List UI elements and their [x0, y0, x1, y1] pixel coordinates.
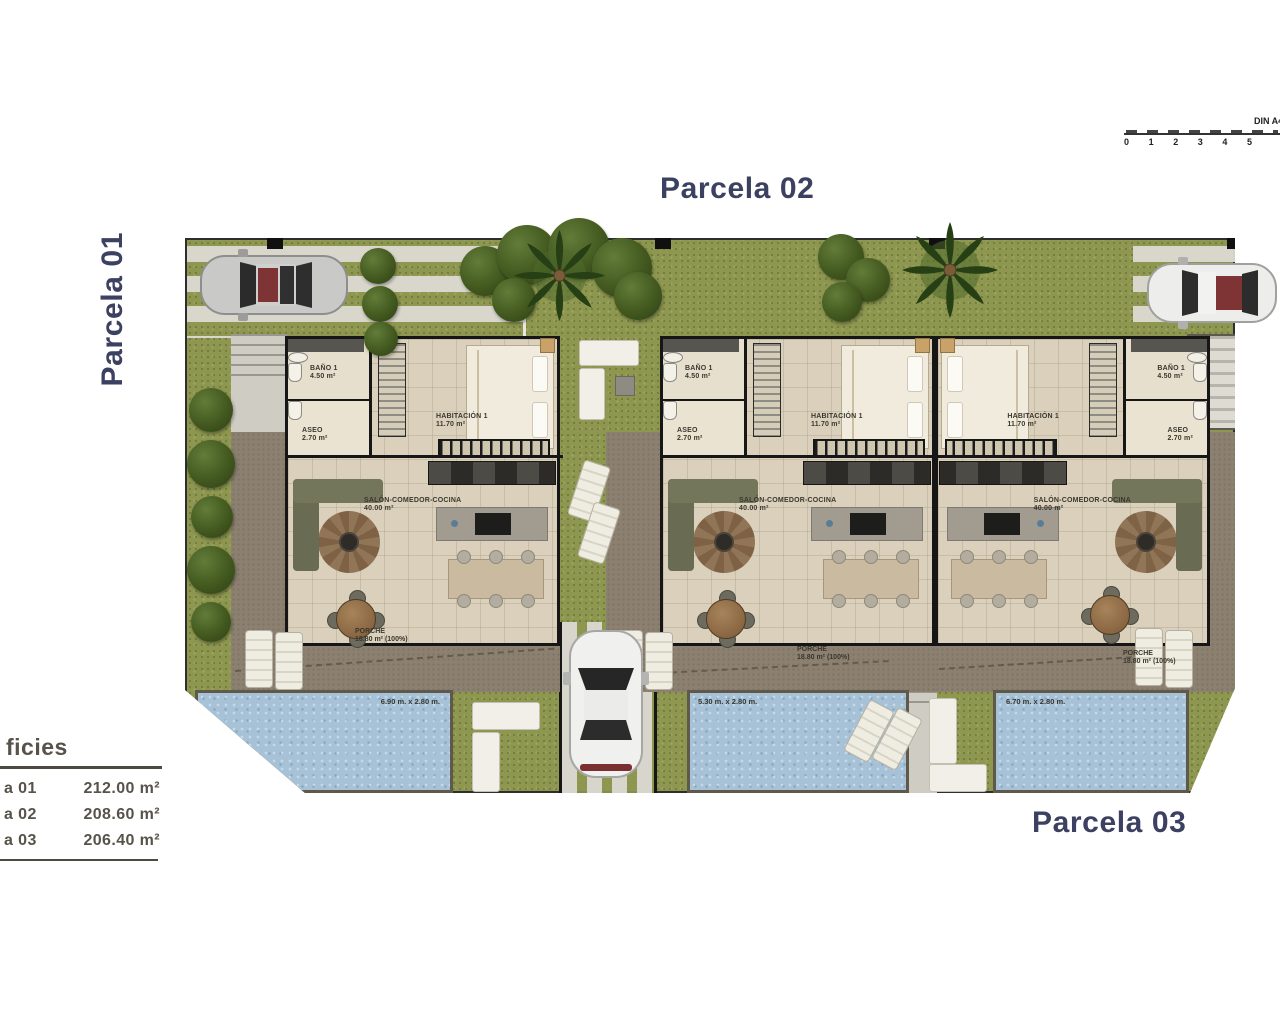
pool: 6.90 m. x 2.80 m. — [195, 690, 453, 793]
aseo-label: ASEO2.70 m² — [677, 427, 703, 444]
scale-bar-label: DIN A4 — [1254, 116, 1280, 126]
tree-icon — [191, 496, 233, 538]
nightstand-icon — [915, 338, 930, 353]
outdoor-sofa-icon — [472, 702, 540, 730]
toilet-icon — [288, 401, 302, 420]
bed-icon — [466, 345, 554, 449]
coffee-table-icon — [339, 532, 359, 552]
villa-floorplan-1: BAÑO 14.50 m² ASEO2.70 m² HABITACIÓN 111… — [285, 336, 560, 646]
salon-label: SALÓN-COMEDOR-COCINA40.00 m² — [1034, 497, 1131, 514]
dining-table-icon — [951, 559, 1047, 599]
parcela-01-title: Parcela 01 — [96, 232, 130, 386]
toilet-icon — [663, 401, 677, 420]
dining-table-icon — [823, 559, 919, 599]
outdoor-table-icon — [699, 592, 753, 646]
porche-label: PORCHE18.80 m² (100%) — [355, 628, 408, 645]
tree-icon — [362, 286, 398, 322]
scale-bar-line — [1124, 133, 1280, 135]
car-icon — [198, 248, 350, 327]
parcela-02-title: Parcela 02 — [660, 172, 814, 206]
toilet-icon — [288, 363, 302, 382]
pool: 6.70 m. x 2.80 m. — [993, 690, 1189, 793]
wardrobe-icon — [1089, 343, 1117, 437]
coffee-table-icon — [714, 532, 734, 552]
parcela-03-title: Parcela 03 — [1032, 806, 1186, 840]
stairs-icon — [813, 439, 925, 457]
boundary-diagonal — [1192, 689, 1240, 796]
car-icon — [562, 628, 650, 785]
outdoor-sofa-icon — [579, 368, 605, 420]
sink-icon — [663, 352, 683, 363]
room-aseo — [288, 401, 369, 455]
kitchen-counter — [803, 461, 931, 485]
pool-dimensions-label: 6.70 m. x 2.80 m. — [1006, 697, 1065, 706]
scale-bar: DIN A4 012345 — [1124, 116, 1280, 156]
villa-floorplan-3: BAÑO 14.50 m² ASEO2.70 m² HABITACIÓN 111… — [935, 336, 1210, 646]
lounger-icon — [275, 632, 303, 690]
boundary-pier — [655, 237, 671, 249]
room-aseo — [663, 401, 744, 455]
sink-icon — [288, 352, 308, 363]
wardrobe-icon — [753, 343, 781, 437]
outdoor-sofa-icon — [929, 764, 987, 792]
tree-icon — [187, 546, 235, 594]
pool-dimensions-label: 6.90 m. x 2.80 m. — [381, 697, 440, 706]
salon-label: SALÓN-COMEDOR-COCINA40.00 m² — [739, 497, 836, 514]
habitacion-label: HABITACIÓN 111.70 m² — [436, 413, 488, 430]
lounger-icon — [245, 630, 273, 688]
porche-label: PORCHE18.80 m² (100%) — [1123, 650, 1176, 667]
legend-row: a 01212.00 m² — [0, 776, 162, 802]
palm-tree-icon — [900, 220, 1000, 320]
tree-icon — [187, 440, 235, 488]
pool-dimensions-label: 5.30 m. x 2.80 m. — [698, 697, 757, 706]
coffee-table-icon — [1136, 532, 1156, 552]
bed-icon — [941, 345, 1029, 449]
bano-label: BAÑO 14.50 m² — [310, 365, 338, 382]
scale-bar-ticks: 012345 — [1124, 137, 1252, 147]
habitacion-label: HABITACIÓN 111.70 m² — [811, 413, 863, 430]
legend-row: a 02208.60 m² — [0, 802, 162, 828]
bath-counter — [1131, 339, 1207, 352]
wardrobe-icon — [378, 343, 406, 437]
legend-rule — [0, 766, 162, 769]
tree-icon — [360, 248, 396, 284]
outdoor-sofa-icon — [472, 732, 500, 792]
habitacion-label: HABITACIÓN 111.70 m² — [1007, 413, 1059, 430]
kitchen-counter — [428, 461, 556, 485]
outdoor-table-icon — [1083, 588, 1137, 642]
toilet-icon — [1193, 363, 1207, 382]
aseo-label: ASEO2.70 m² — [302, 427, 328, 444]
outdoor-sofa-icon — [579, 340, 639, 366]
car-icon — [1146, 256, 1278, 335]
salon-label: SALÓN-COMEDOR-COCINA40.00 m² — [364, 497, 461, 514]
stairs-icon — [438, 439, 550, 457]
dining-table-icon — [448, 559, 544, 599]
porche-label: PORCHE18.80 m² (100%) — [797, 646, 850, 663]
terrace — [606, 432, 660, 562]
tree-icon — [614, 272, 662, 320]
nightstand-icon — [940, 338, 955, 353]
bed-icon — [841, 345, 929, 449]
outdoor-sofa-icon — [929, 698, 957, 764]
bath-counter — [288, 339, 364, 352]
tree-icon — [191, 602, 231, 642]
aseo-label: ASEO2.70 m² — [1167, 427, 1193, 444]
legend-title: ficies — [0, 734, 162, 761]
sink-icon — [1187, 352, 1207, 363]
stairs-icon — [945, 439, 1057, 457]
tree-icon — [189, 388, 233, 432]
site-plan-page: Parcela 01 Parcela 02 Parcela 03 DIN A4 … — [0, 0, 1280, 1024]
bano-label: BAÑO 14.50 m² — [685, 365, 713, 382]
nightstand-icon — [540, 338, 555, 353]
legend-row: a 03206.40 m² — [0, 828, 162, 854]
boundary-pier — [1227, 237, 1243, 249]
tree-icon — [822, 282, 862, 322]
tree-icon — [364, 322, 398, 356]
bath-counter — [663, 339, 739, 352]
toilet-icon — [663, 363, 677, 382]
bano-label: BAÑO 14.50 m² — [1157, 365, 1185, 382]
legend-rule — [0, 859, 158, 861]
surface-legend: ficies a 01212.00 m² a 02208.60 m² a 032… — [0, 734, 162, 861]
kitchen-counter — [939, 461, 1067, 485]
side-table-icon — [615, 376, 635, 396]
palm-tree-icon — [512, 228, 607, 323]
toilet-icon — [1193, 401, 1207, 420]
